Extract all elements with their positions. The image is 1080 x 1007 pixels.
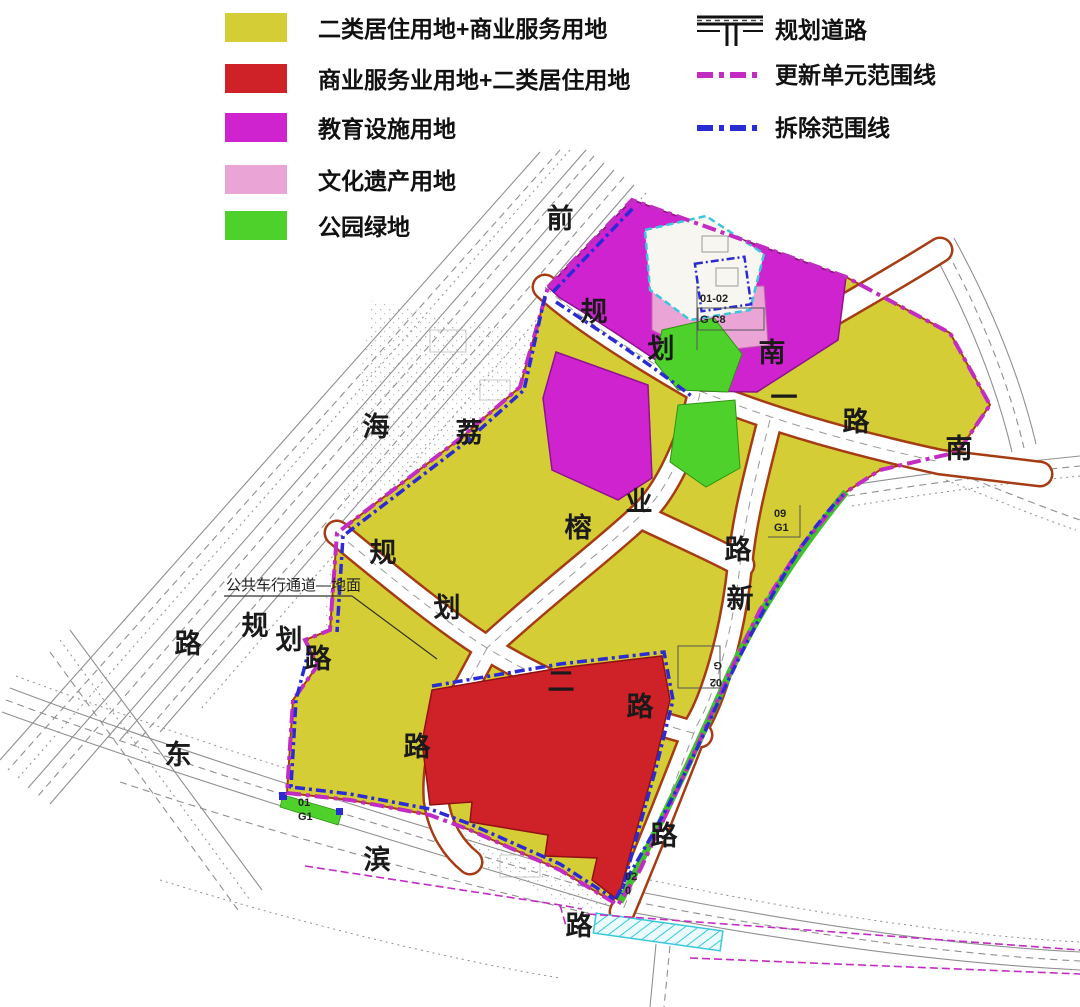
road-name-char: 划 xyxy=(648,334,675,364)
planned-road-icon xyxy=(697,17,763,46)
parcel-code: G C8 xyxy=(700,314,726,326)
land-use-map: 前规划南一路海荔南业榕路新规划路规划路二路东路滨路路 01-02G C809G1… xyxy=(0,0,1080,1007)
road-name-char: 南 xyxy=(759,338,786,368)
road-name-char: 路 xyxy=(175,628,203,659)
parcel-code: 09 xyxy=(774,508,786,520)
legend-label-commercial: 商业服务业用地+二类居住用地 xyxy=(318,67,630,93)
legend-swatch-heritage xyxy=(225,165,287,194)
road-name-char: 划 xyxy=(276,625,303,655)
legend-label-heritage: 文化遗产用地 xyxy=(318,168,456,194)
road-name-char: 路 xyxy=(566,910,594,941)
road-name-char: 南 xyxy=(946,434,973,464)
parcel-code: 01 xyxy=(298,797,310,809)
road-name-char: 滨 xyxy=(364,844,391,875)
road-name-char: 规 xyxy=(242,611,269,641)
planning-map-page: 前规划南一路海荔南业榕路新规划路规划路二路东路滨路路 01-02G C809G1… xyxy=(0,0,1080,1007)
road-name-char: 规 xyxy=(581,297,608,327)
road-name-char: 二 xyxy=(548,667,575,697)
parcel-code: 02 xyxy=(625,871,637,883)
parcel-code: G xyxy=(713,659,722,671)
legend-label-demolition-boundary: 拆除范围线 xyxy=(775,115,890,141)
legend-swatch-park xyxy=(225,211,287,240)
boundary-fragment xyxy=(336,808,343,815)
bottom-stub-road xyxy=(650,944,670,1007)
road-name-char: 新 xyxy=(727,583,754,614)
legend-label-residential: 二类居住用地+商业服务用地 xyxy=(318,16,607,42)
road-name-char: 海 xyxy=(363,412,390,442)
parcel-code: G1 xyxy=(298,811,313,823)
legend-right: 规划道路 更新单元范围线 拆除范围线 xyxy=(697,17,936,141)
road-name-char: 荔 xyxy=(456,418,483,448)
road-name-char: 规 xyxy=(370,538,397,568)
parcel-code: 01-02 xyxy=(700,293,728,305)
parcel-code: 0 xyxy=(625,885,631,897)
legend-label-park: 公园绿地 xyxy=(318,214,410,240)
parcel-code: G1 xyxy=(774,522,789,534)
road-name-char: 前 xyxy=(547,203,574,234)
legend-label-education: 教育设施用地 xyxy=(318,116,456,142)
road-name-char: 业 xyxy=(626,487,653,517)
road-name-char: 一 xyxy=(771,383,798,413)
metro-strip xyxy=(593,913,723,951)
road-name-char: 划 xyxy=(434,593,461,623)
legend-swatch-education xyxy=(225,113,287,142)
road-name-char: 东 xyxy=(165,739,192,770)
road-name-char: 路 xyxy=(627,691,655,722)
road-name-char: 路 xyxy=(725,534,753,565)
road-name-char: 路 xyxy=(305,643,333,674)
legend-swatch-commercial xyxy=(225,64,287,93)
road-name-char: 路 xyxy=(404,731,432,762)
bottom-magenta-dashes xyxy=(305,866,1080,974)
parcel-code: 02 xyxy=(710,676,722,688)
road-name-char: 榕 xyxy=(565,512,593,543)
legend-label-planned-road: 规划道路 xyxy=(775,17,868,43)
road-name-char: 路 xyxy=(651,820,679,851)
legend-label-renewal-boundary: 更新单元范围线 xyxy=(775,62,936,88)
vehicle-passage-label: 公共车行通道—地面 xyxy=(226,577,361,594)
road-name-char: 路 xyxy=(843,406,871,437)
legend-swatch-residential xyxy=(225,13,287,42)
